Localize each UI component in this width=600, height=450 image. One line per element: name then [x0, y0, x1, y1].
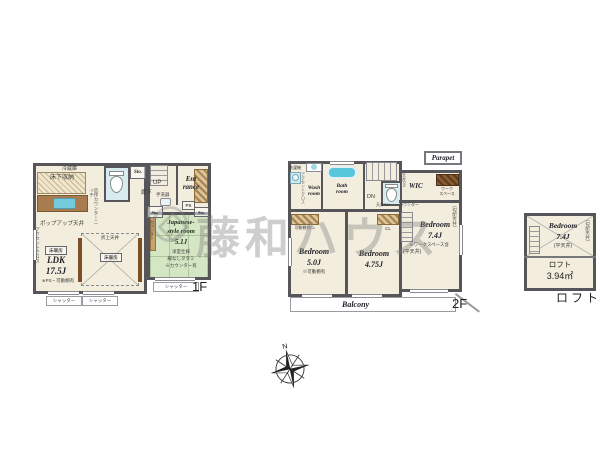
vanity-bowl-icon — [311, 164, 317, 170]
japanese-room-spec: 洋室仕様 — [154, 249, 208, 254]
floor-heating-label-2: 床暖房 — [104, 255, 118, 261]
stairs-down-label: DN — [367, 194, 375, 200]
closet-bed475 — [377, 214, 399, 225]
ldk-size: 17.5J — [38, 266, 74, 276]
kitchen-sink-icon — [53, 198, 76, 209]
bedroom50-note: ※可動棚有 — [296, 269, 332, 274]
wall — [524, 256, 596, 258]
japanese-room-name2: style room — [154, 228, 208, 235]
hand-basin-label: 手洗器 — [156, 192, 170, 197]
shutter-box: シャッター — [46, 296, 82, 306]
wash-room-label: Wash room — [303, 185, 325, 198]
closet-bed475-label: CL — [381, 226, 395, 231]
bath-room-line1: Bath — [336, 183, 347, 189]
hallway-label: 廊下 — [141, 190, 152, 196]
stairs-down — [366, 162, 397, 181]
bath-room-line2: room — [336, 189, 348, 195]
washing-machine-drum-icon — [292, 174, 299, 181]
loft-area-name: ロフト — [527, 261, 593, 270]
window — [155, 277, 195, 281]
counter-niche-label: 造作カウンターニッチ — [89, 188, 98, 224]
loft-section-label: ロフト — [556, 292, 600, 306]
floor1-label: 1F — [192, 280, 207, 295]
closet-bed50 — [291, 214, 319, 225]
wash-room-line2: room — [308, 191, 320, 197]
bedroom50-name: Bedroom — [293, 247, 335, 256]
wash-room-line1: Wash — [308, 185, 320, 191]
bedroom74-sloped-ceiling: (勾配天井) — [452, 206, 457, 238]
window — [288, 238, 292, 266]
wood-pillar — [78, 238, 82, 282]
wic-label: WIC — [409, 182, 423, 190]
closet-bed50-label: 可動棚付CL — [290, 226, 320, 231]
bathtub-icon — [327, 166, 357, 179]
storage-box-3: Sto. — [194, 207, 209, 217]
ceiling-dn-label-v: 天井DN — [402, 173, 406, 191]
balcony-label: Balcony — [342, 300, 369, 309]
balcony-area — [290, 297, 456, 312]
shutter-label: シャッター — [165, 284, 188, 290]
bedroom475-size: 4.75J — [351, 260, 397, 269]
parapet-box: Parapet — [424, 151, 462, 165]
ceiling-dn-label-h: 天井DN — [376, 203, 390, 208]
storage-label-1: Sto. — [134, 170, 142, 175]
window — [459, 225, 463, 255]
popup-ceiling-label: ポップアップ天井 — [40, 221, 84, 227]
bedroom74-name: Bedroom — [413, 220, 457, 229]
shutter-label: シャッター — [53, 298, 76, 304]
bedroom475-name: Bedroom — [351, 249, 397, 258]
loft-sloped-ceiling: (勾配天井) — [585, 220, 590, 254]
floor-plan-canvas: 床下収納 冷蔵庫 造作カウンターニッチ Sto. UP 廊下 手洗器 Ent r… — [0, 0, 600, 450]
underfloor-storage-label: 床下収納 — [49, 175, 75, 182]
ldk-note: ※PS・可動棚有 — [32, 278, 84, 283]
storage-box-1: Sto. — [130, 166, 146, 179]
compass-rose: N — [264, 340, 316, 392]
bedroom74-flat-ceiling: (平天井) — [403, 250, 421, 256]
bedroom50-size: 5.0J — [293, 258, 335, 267]
japanese-room-tatami: 縁なしタタミ — [154, 256, 208, 261]
loft-ladder-icon — [401, 212, 413, 242]
window — [410, 289, 448, 293]
stairs-up-label: UP — [153, 180, 161, 187]
wood-pillar — [138, 238, 142, 282]
window — [352, 294, 382, 298]
pipe-space-label: PS — [185, 203, 191, 208]
coffered-ceiling-label: 折上天井 — [93, 235, 127, 240]
floor-heating-label-1: 床暖房 — [49, 248, 63, 254]
entrance-label: Ent rance — [178, 175, 204, 191]
counter-label-2f: カウンター — [399, 203, 419, 208]
floor2-label: 2F — [452, 297, 467, 312]
floor-heating-box-1: 床暖房 — [45, 246, 67, 255]
shutter-label: シャッター — [89, 298, 112, 304]
bedroom74-size: 7.4J — [413, 231, 457, 240]
shutter-box: シャッター — [82, 296, 118, 306]
compass-north-label: N — [282, 343, 288, 351]
washer-label: 洗濯機 — [289, 166, 301, 171]
workspace-label: ワーク スペース — [434, 187, 460, 196]
hand-basin-icon — [160, 198, 171, 206]
window — [330, 161, 354, 165]
ldk-name: LDK — [38, 255, 74, 265]
wall — [345, 212, 348, 297]
loft-bedroom-name: Bedroom — [538, 222, 588, 231]
parapet-label: Parapet — [432, 154, 455, 162]
storage-box-2: Sto. — [147, 206, 163, 218]
entrance-line1: Ent — [186, 175, 197, 183]
window — [83, 291, 114, 295]
bath-room-label: Bath room — [327, 183, 357, 196]
window — [302, 294, 332, 298]
storage-label-3: Sto. — [198, 210, 205, 215]
storage-label-2: Sto. — [151, 210, 158, 215]
entrance-line2: rance — [183, 183, 199, 191]
japanese-room-name1: Japanese- — [154, 219, 208, 226]
japanese-room-note: ※カウンター有 — [154, 263, 208, 268]
workspace-line2: スペース — [439, 191, 455, 196]
bedroom74-note: ※ワークスペース含 — [401, 242, 457, 247]
workspace-desk — [436, 174, 459, 186]
floor-heating-box-2: 床暖房 — [100, 253, 122, 262]
window — [48, 291, 79, 295]
refrigerator-label: 冷蔵庫 — [62, 167, 77, 173]
japanese-room-size: 5.1J — [154, 238, 208, 246]
loft-area-size: 3.94㎡ — [527, 271, 593, 281]
loft-flat-ceiling: (平天井) — [538, 244, 588, 250]
loft-bedroom-size: 7.4J — [538, 233, 588, 242]
wall — [363, 161, 365, 209]
